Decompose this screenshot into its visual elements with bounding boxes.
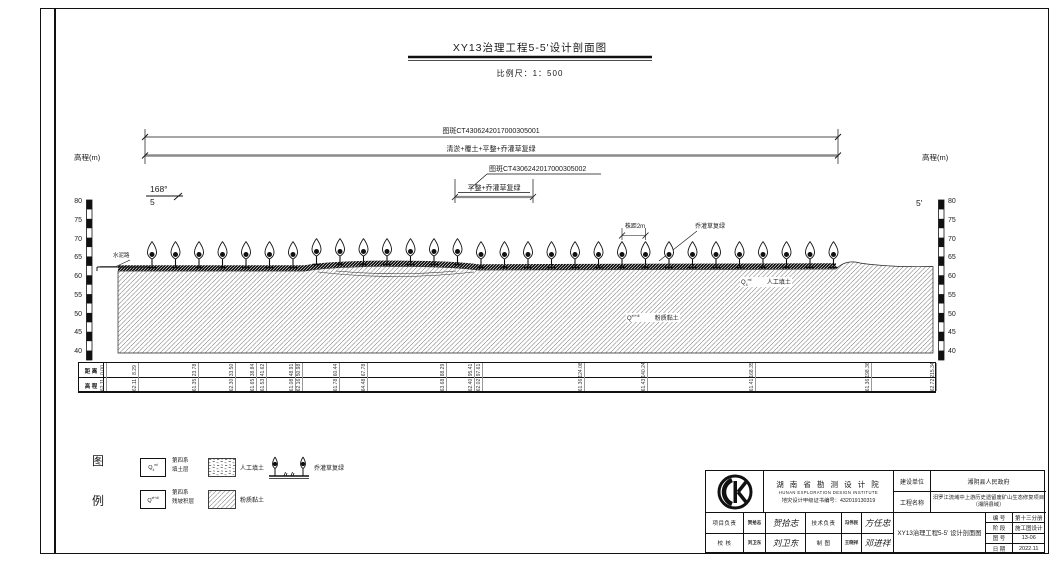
checker-name: 刘卫东 xyxy=(744,534,766,553)
profile-table-value: 61.36 xyxy=(865,374,871,396)
profile-table-value: 63.68 xyxy=(440,374,446,396)
profile-table-column-line xyxy=(482,363,483,391)
client-label: 建设单位 xyxy=(894,471,931,492)
project-lead-name: 贺拾志 xyxy=(744,513,766,534)
regreen-trees xyxy=(147,239,838,268)
drafter-signature: 邓进祥 xyxy=(862,534,894,553)
patch2-label: 图斑CT4306242017000305002 xyxy=(489,164,586,174)
profile-table-column-line xyxy=(446,363,447,391)
profile-table-value: 62.16 xyxy=(296,374,302,396)
legend-clay-swatch xyxy=(208,490,236,509)
drawing-meta-value: 2022.11 xyxy=(1013,544,1045,554)
fill-soil-text: 人工填土 xyxy=(767,280,791,286)
profile-table-value: 62.11 xyxy=(132,374,138,396)
drawing-meta-table: 编 号第十三分册阶 段施工图设计图 号13-06日 期2022.11 xyxy=(986,513,1045,553)
fill-soil-label: Q4ml 人工填土 xyxy=(740,277,792,287)
profile-table-value: 62.11 xyxy=(100,374,106,396)
profile-table-column-line xyxy=(235,363,236,391)
drawing-meta-value: 施工图设计 xyxy=(1013,523,1045,532)
legend-fill-swatch xyxy=(208,458,236,477)
project-value: 汨罗江流域中上游历史遗留废矿山生态修复项目（湘阴县域） xyxy=(931,492,1046,513)
profile-table-value: 62.02 xyxy=(476,374,482,396)
legend-heading-char-2: 例 xyxy=(92,492,104,509)
drawing-meta-row: 日 期2022.11 xyxy=(986,544,1045,554)
profile-table-column-line xyxy=(584,363,585,391)
clay-label: Qel+dl 粉质黏土 xyxy=(626,313,680,322)
section-start-angle: 168° xyxy=(150,184,168,194)
project-lead-signature: 贺拾志 xyxy=(766,513,806,534)
profile-table-value: 61.36 xyxy=(578,374,584,396)
institute-name-cn: 湖 南 省 勘 测 设 计 院 xyxy=(776,479,881,490)
legend-regreen-symbol xyxy=(268,454,310,480)
page-title: XY13治理工程5-5'设计剖面图 xyxy=(330,40,730,55)
profile-table-column-line xyxy=(755,363,756,391)
elevation-tick: 40 xyxy=(74,348,82,355)
elevation-tick: 50 xyxy=(948,311,956,318)
profile-table-value: 61.35 xyxy=(192,374,198,396)
elevation-tick: 75 xyxy=(948,217,956,224)
cement-road-label: 水泥路 xyxy=(112,251,131,259)
project-lead-label: 项目负责 xyxy=(706,513,744,534)
legend-regreen-label: 乔灌草复绿 xyxy=(314,463,344,472)
elevation-tick: 40 xyxy=(948,348,956,355)
client-value: 湘阴县人民政府 xyxy=(931,471,1046,492)
elevation-tick: 45 xyxy=(948,329,956,336)
elevation-tick: 60 xyxy=(948,273,956,280)
profile-table-value: 61.78 xyxy=(333,374,339,396)
institute-name-en: HUNAN EXPLORATION DESIGN INSTITUTE xyxy=(776,490,881,495)
elevation-tick: 55 xyxy=(74,292,82,299)
drawing-title-cell: XY13治理工程5-5' 设计剖面图 xyxy=(894,513,986,553)
plant-spacing-label: 株距2m xyxy=(609,221,661,230)
profile-table-value: 61.65 xyxy=(250,374,256,396)
elevation-tick: 70 xyxy=(948,236,956,243)
drafter-name: 王晓祥 xyxy=(842,534,862,553)
section-start-id: 5 xyxy=(150,197,155,207)
profile-table-column-line xyxy=(339,363,340,391)
elevation-tick: 65 xyxy=(74,254,82,261)
elevation-scalebar-right xyxy=(939,200,945,360)
regreen-label: 乔灌草复绿 xyxy=(694,221,726,230)
profile-table-column-line xyxy=(936,363,937,391)
institute-certificate: 地灾设计甲级证书编号：432019130319 xyxy=(776,496,881,504)
legend-heading-char-1: 图 xyxy=(92,452,104,469)
legend-symbol-q4ml: Q4ml xyxy=(140,458,166,477)
institute-logo-cell xyxy=(706,471,764,513)
institute-logo xyxy=(713,473,757,511)
clay-symbol: Qel+dl xyxy=(627,316,639,322)
title-underline xyxy=(408,57,652,61)
elevation-tick: 60 xyxy=(74,273,82,280)
drawing-meta-row: 阶 段施工图设计 xyxy=(986,523,1045,533)
profile-table-column-line xyxy=(367,363,368,391)
elevation-tick: 80 xyxy=(948,198,956,205)
elevation-tick: 55 xyxy=(948,292,956,299)
title-block: 湖 南 省 勘 测 设 计 院 HUNAN EXPLORATION DESIGN… xyxy=(705,470,1045,553)
elevation-tick: 75 xyxy=(74,217,82,224)
legend-fill-label: 人工填土 xyxy=(240,463,264,472)
profile-table-value: 62.40 xyxy=(468,374,474,396)
drawing-meta-value: 13-06 xyxy=(1013,534,1045,543)
drawing-meta-label: 编 号 xyxy=(986,513,1013,522)
tech-lead-signature: 方任忠 xyxy=(862,513,894,534)
profile-table-value: 62.30 xyxy=(229,374,235,396)
profile-table-column-line xyxy=(266,363,267,391)
elevation-ticks-right: 807570656055504540 xyxy=(948,199,970,359)
institute-info-cell: 湖 南 省 勘 测 设 计 院 HUNAN EXPLORATION DESIGN… xyxy=(764,471,894,513)
checker-signature: 刘卫东 xyxy=(766,534,806,553)
profile-table: 距 离 高 程 0.0062.118.2962.1123.7861.3533.5… xyxy=(78,362,936,393)
legend-clay-label: 粉质黏土 xyxy=(240,495,264,504)
elevation-axis-label-right: 高程(m) xyxy=(922,152,948,163)
elevation-tick: 65 xyxy=(948,254,956,261)
clay-text: 粉质黏土 xyxy=(655,316,679,322)
silty-clay-body xyxy=(118,262,933,353)
tech-lead-name: 冯伟民 xyxy=(842,513,862,534)
tech-lead-label: 技术负责 xyxy=(806,513,842,534)
patch2-treatment: 平整+乔灌草复绿 xyxy=(434,183,554,193)
elevation-ticks-left: 807570656055504540 xyxy=(60,199,82,359)
section-end-id: 5' xyxy=(916,198,922,208)
project-label: 工程名称 xyxy=(894,492,931,513)
drawing-sheet: XY13治理工程5-5'设计剖面图 比例尺：1：500 图斑CT43062420… xyxy=(0,0,1062,561)
legend: 图 例 Q4ml 第四系填土层 Qel+dl 第四系残坡积层 人工填土 粉质黏土 xyxy=(88,446,368,526)
drawing-meta-label: 阶 段 xyxy=(986,523,1013,532)
profile-table-values: 0.0062.118.2962.1123.7861.3533.5062.3038… xyxy=(79,363,935,391)
elevation-tick: 45 xyxy=(74,329,82,336)
legend-symbol-qeldl: Qel+dl xyxy=(140,490,166,509)
drawing-meta-label: 日 期 xyxy=(986,544,1013,554)
patch1-label: 图斑CT4306242017000305001 xyxy=(341,126,641,136)
profile-table-column-line xyxy=(106,363,107,391)
drawing-meta-label: 图 号 xyxy=(986,534,1013,543)
drawing-meta-row: 编 号第十三分册 xyxy=(986,513,1045,523)
elevation-scalebar-left xyxy=(87,200,93,360)
fill-soil-symbol: Q4ml xyxy=(741,280,751,286)
profile-table-value: 64.48 xyxy=(361,374,367,396)
elevation-tick: 50 xyxy=(74,311,82,318)
scale-label: 比例尺：1：500 xyxy=(330,68,730,79)
legend-qeldl-text: 第四系残坡积层 xyxy=(172,489,194,507)
profile-table-value: 61.08 xyxy=(289,374,295,396)
profile-table-value: 62.72 xyxy=(930,374,936,396)
profile-table-value: 61.53 xyxy=(260,374,266,396)
elevation-axis-label-left: 高程(m) xyxy=(74,152,100,163)
profile-table-value: 61.43 xyxy=(641,374,647,396)
profile-table-value: 61.41 xyxy=(749,374,755,396)
profile-table-column-line xyxy=(302,363,303,391)
drafter-label: 制 图 xyxy=(806,534,842,553)
profile-table-column-line xyxy=(138,363,139,391)
checker-label: 校 核 xyxy=(706,534,744,553)
drawing-meta-row: 图 号13-06 xyxy=(986,534,1045,544)
elevation-tick: 80 xyxy=(74,198,82,205)
legend-q4ml-text: 第四系填土层 xyxy=(172,457,189,475)
patch1-treatment: 清淤+覆土+平整+乔灌草复绿 xyxy=(341,144,641,154)
elevation-tick: 70 xyxy=(74,236,82,243)
drawing-meta-value: 第十三分册 xyxy=(1013,513,1045,522)
